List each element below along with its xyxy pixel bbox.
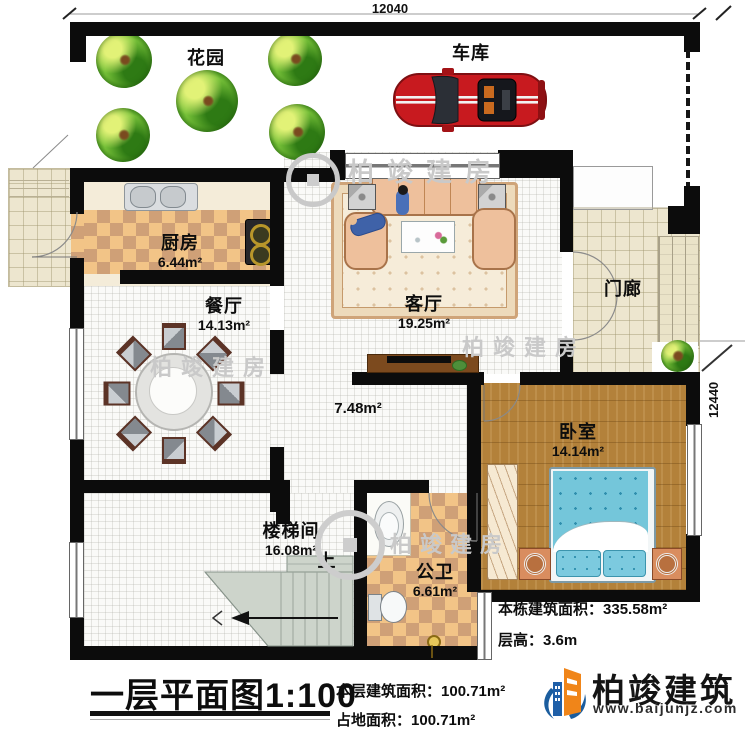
side-porch-edge <box>33 135 68 168</box>
title-underline-thin <box>90 719 330 720</box>
stairs-up-label: 上 <box>314 551 340 572</box>
floor-area-value: 100.71m² <box>441 683 505 700</box>
floor-plan: 花园 车库 厨房 6.44m² 餐厅 14.13m² 客厅 19.25m² 门廊… <box>0 0 750 730</box>
room-label-hallway: 7.48m² <box>318 400 398 418</box>
plan-title: 一层平面图1:100 <box>90 668 357 717</box>
footprint-label: 占地面积： <box>336 712 411 729</box>
bedroom-area: 14.14m² <box>528 443 628 460</box>
room-label-garden: 花园 <box>156 48 256 69</box>
dimension-tick <box>716 6 731 20</box>
title-underline <box>90 711 330 716</box>
porch-name: 门廊 <box>597 279 649 300</box>
door-arc-bedroom <box>484 385 520 421</box>
building-total-row: 本栋建筑面积：335.58m² <box>498 598 667 619</box>
dining-area: 14.13m² <box>172 317 276 334</box>
room-label-dining: 餐厅 14.13m² <box>172 296 276 334</box>
room-label-bedroom: 卧室 14.14m² <box>528 422 628 460</box>
living-name: 客厅 <box>374 294 474 315</box>
dining-name: 餐厅 <box>172 296 276 317</box>
dimension-right: 12440 <box>706 338 721 418</box>
dimension-top: 12040 <box>358 1 422 16</box>
bathroom-name: 公卫 <box>393 562 477 583</box>
building-stats: 本栋建筑面积：335.58m² 层高：3.6m <box>498 598 667 658</box>
room-label-bathroom: 公卫 6.61m² <box>393 562 477 600</box>
door-arc-bathroom <box>429 493 477 541</box>
floor-height-value: 3.6m <box>543 632 577 649</box>
footprint-row: 占地面积：100.71m² <box>336 709 505 730</box>
room-label-garage: 车库 <box>421 43 521 64</box>
footprint-value: 100.71m² <box>411 712 475 729</box>
floor-area-row: 本层建筑面积：100.71m² <box>336 680 505 701</box>
door-arc-porch <box>573 296 617 340</box>
building-total-label: 本栋建筑面积： <box>498 601 603 618</box>
up-text: 上 <box>314 551 340 572</box>
garage-name: 车库 <box>421 43 521 64</box>
garden-name: 花园 <box>156 48 256 69</box>
floor-stats: 本层建筑面积：100.71m² 占地面积：100.71m² <box>336 680 505 730</box>
room-label-living: 客厅 19.25m² <box>374 294 474 332</box>
kitchen-name: 厨房 <box>130 233 230 254</box>
brand-website: www.baijunjz.com <box>593 700 738 716</box>
kitchen-area: 6.44m² <box>130 254 230 271</box>
floor-height-row: 层高：3.6m <box>498 629 667 650</box>
floor-height-label: 层高： <box>498 632 543 649</box>
living-area: 19.25m² <box>374 315 474 332</box>
bedroom-name: 卧室 <box>528 422 628 443</box>
door-arc-kitchen <box>32 212 77 257</box>
plan-title-text: 一层平面图 <box>90 677 265 715</box>
bathroom-area: 6.61m² <box>393 583 477 600</box>
brand-logo-icon <box>541 664 589 724</box>
room-label-porch: 门廊 <box>597 279 649 300</box>
stairwell-name: 楼梯间 <box>239 521 343 542</box>
building-total-value: 335.58m² <box>603 601 667 618</box>
floor-area-label: 本层建筑面积： <box>336 683 441 700</box>
hallway-area: 7.48m² <box>318 400 398 418</box>
room-label-kitchen: 厨房 6.44m² <box>130 233 230 271</box>
